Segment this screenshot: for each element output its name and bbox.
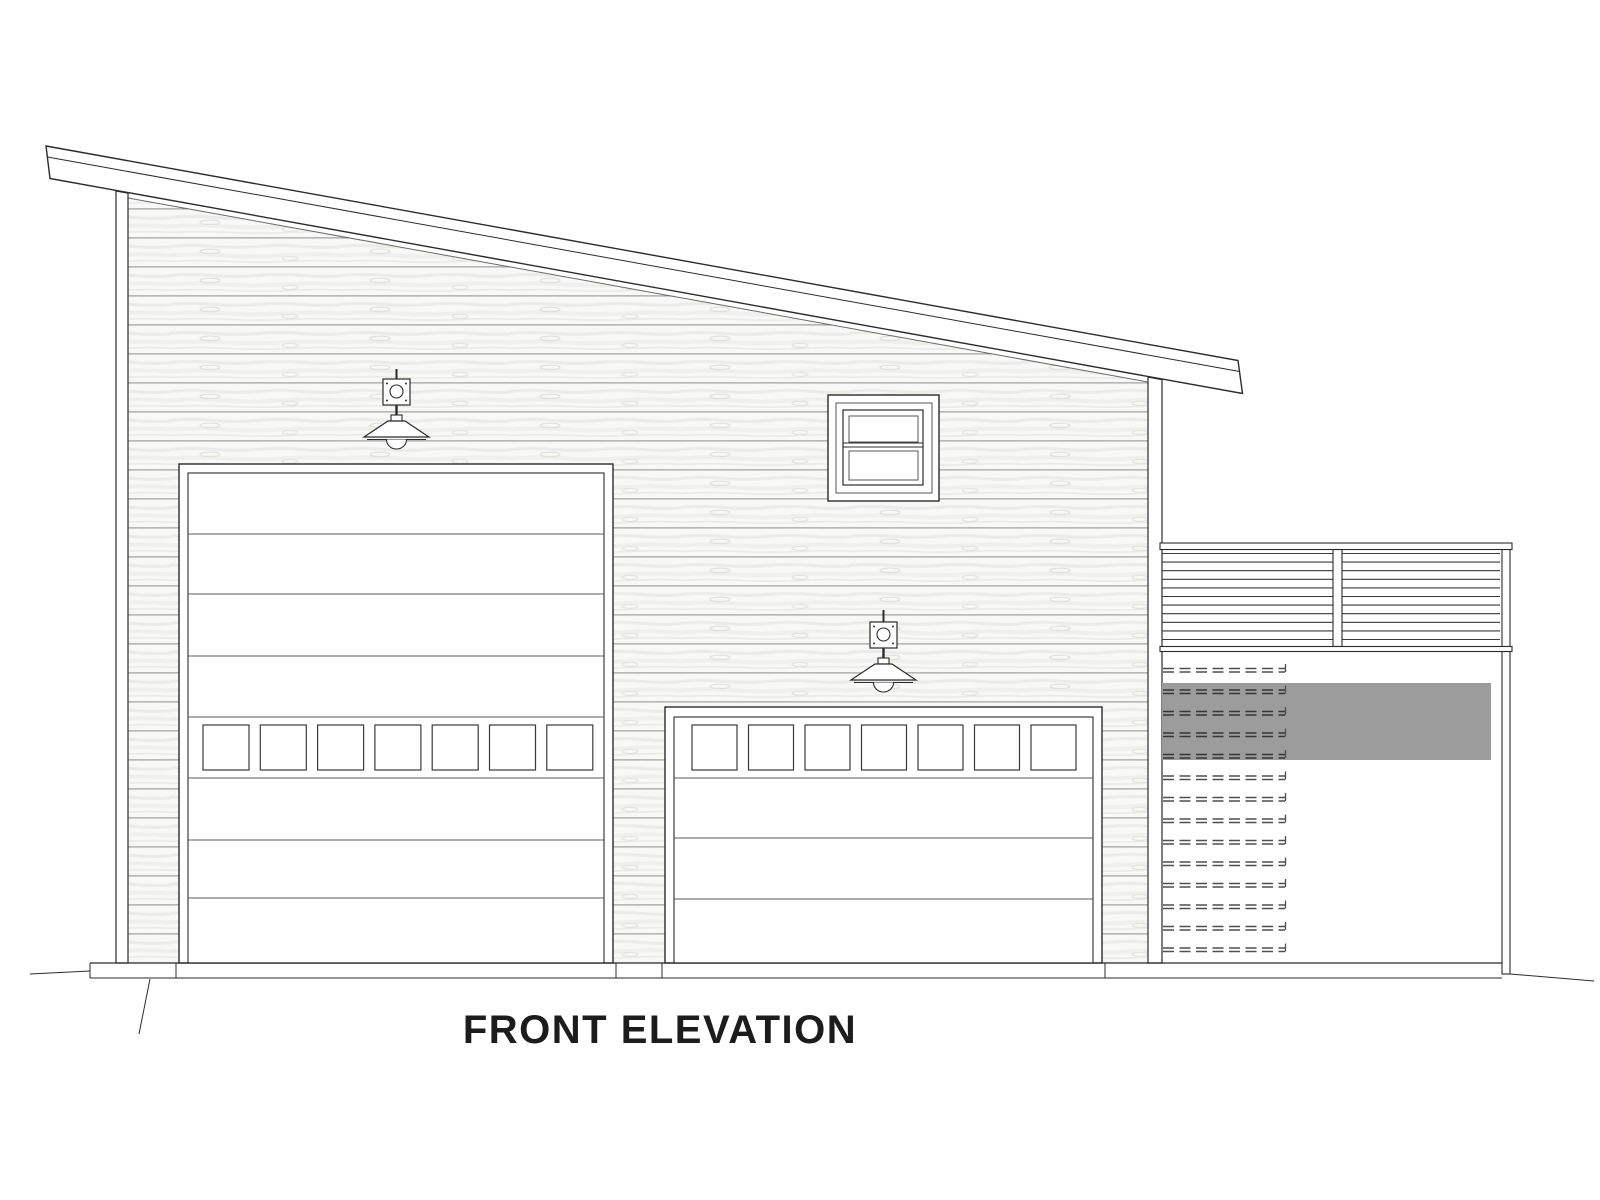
railing-slats [1162, 554, 1500, 640]
screw-dot [892, 626, 894, 628]
drawing-title: FRONT ELEVATION [463, 1008, 857, 1052]
fixture-collar [878, 658, 889, 664]
screw-dot [892, 643, 894, 645]
door-window-pane [862, 725, 907, 770]
grade-line-left [30, 971, 90, 974]
carport-deck [1160, 543, 1512, 974]
door-window-pane [432, 725, 478, 770]
grade-slope-line [139, 979, 150, 1034]
door-window-pane [749, 725, 794, 770]
garage-door-large-panel-face [188, 473, 604, 963]
railing-bottom-rail [1160, 647, 1512, 652]
door-window-pane [260, 725, 306, 770]
screw-dot [873, 643, 875, 645]
door-window-pane [203, 725, 249, 770]
railing-right-post-upper [1502, 550, 1510, 647]
railing-mid-post [1333, 550, 1342, 647]
fixture-collar [391, 415, 402, 421]
door-window-pane [692, 725, 737, 770]
screw-dot [873, 626, 875, 628]
screw-dot [386, 383, 388, 385]
door-window-pane [375, 725, 421, 770]
door-window-pane [975, 725, 1020, 770]
corner-trim-left [116, 191, 128, 963]
grade-line-right [1510, 974, 1594, 981]
window-upper-pane [849, 416, 918, 442]
screw-dot [405, 400, 407, 402]
garage-door-small [665, 707, 1102, 963]
railing-top-cap [1160, 543, 1512, 550]
door-window-pane [547, 725, 593, 770]
garage-door-small-windows [692, 725, 1076, 770]
garage-door-large-windows [203, 725, 593, 770]
door-window-pane [1031, 725, 1076, 770]
door-window-pane [805, 725, 850, 770]
door-window-pane [918, 725, 963, 770]
door-window-pane [490, 725, 536, 770]
carport-right-post [1502, 652, 1510, 975]
elevation-sheet: FRONT ELEVATION [0, 0, 1600, 1200]
upper-window [828, 395, 939, 501]
window-lower-pane [849, 451, 918, 480]
screw-dot [405, 383, 407, 385]
screw-dot [386, 400, 388, 402]
corner-trim-right [1148, 377, 1162, 963]
door-window-pane [318, 725, 364, 770]
carport-beam-shadow [1162, 683, 1491, 760]
elevation-drawing: FRONT ELEVATION [0, 0, 1600, 1200]
garage-door-large [179, 464, 613, 963]
